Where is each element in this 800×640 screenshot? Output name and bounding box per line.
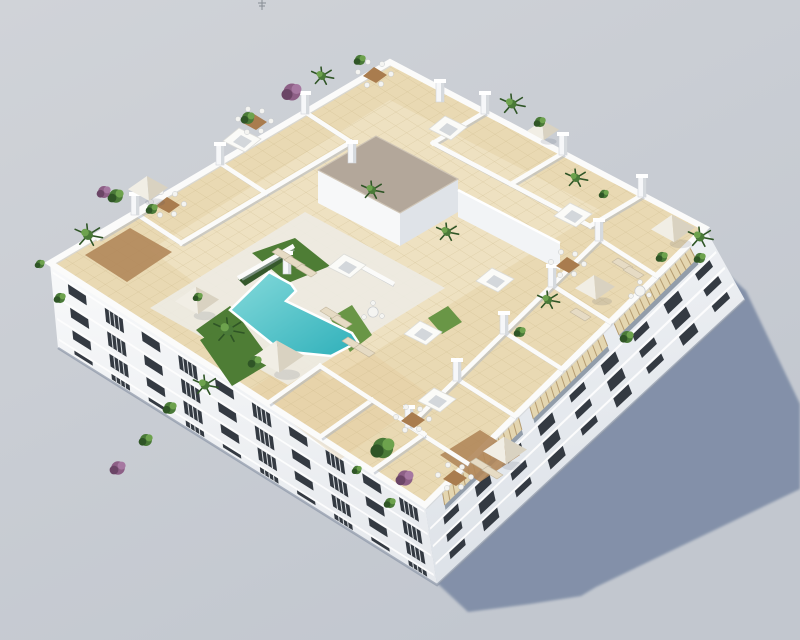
pillar-shade bbox=[553, 267, 556, 287]
plant bbox=[163, 406, 171, 414]
palm-crown bbox=[367, 185, 373, 191]
chair bbox=[379, 61, 384, 66]
plant bbox=[382, 438, 394, 450]
plant bbox=[384, 501, 391, 508]
plant bbox=[255, 356, 262, 363]
plant bbox=[694, 256, 701, 263]
balcony-railing bbox=[339, 516, 340, 521]
balcony-railing bbox=[269, 473, 270, 478]
palm-crown bbox=[571, 173, 577, 179]
plant bbox=[354, 58, 361, 65]
balcony-railing bbox=[195, 426, 196, 431]
chair bbox=[378, 81, 383, 86]
pillar-shade bbox=[643, 177, 646, 197]
chair bbox=[388, 71, 393, 76]
plant bbox=[405, 471, 414, 480]
chair bbox=[393, 414, 398, 419]
chair bbox=[445, 462, 450, 467]
plant bbox=[700, 253, 706, 259]
plant bbox=[118, 462, 126, 470]
pillar-cap bbox=[451, 358, 463, 362]
plant bbox=[248, 112, 255, 119]
chair bbox=[245, 106, 250, 111]
pillar-cap bbox=[214, 142, 226, 146]
plant bbox=[662, 252, 668, 258]
plant bbox=[360, 55, 366, 61]
palm-crown bbox=[317, 71, 323, 77]
plant bbox=[60, 293, 66, 299]
chair bbox=[629, 294, 634, 299]
plant bbox=[97, 190, 105, 198]
plant bbox=[152, 204, 158, 210]
chair bbox=[647, 293, 652, 298]
plant bbox=[352, 469, 358, 475]
architectural-render bbox=[0, 0, 800, 640]
pillar-shade bbox=[505, 314, 508, 334]
round-table bbox=[368, 307, 378, 317]
chair bbox=[558, 249, 563, 254]
chair bbox=[548, 259, 553, 264]
plant bbox=[620, 335, 628, 343]
chair bbox=[171, 211, 176, 216]
chair bbox=[258, 128, 263, 133]
balcony-railing bbox=[343, 519, 344, 524]
chair bbox=[581, 261, 586, 266]
render-canvas bbox=[0, 0, 800, 640]
plant bbox=[604, 190, 609, 195]
palm-crown bbox=[81, 229, 89, 237]
balcony-railing bbox=[273, 476, 274, 481]
balcony-railing bbox=[199, 429, 200, 434]
plant bbox=[396, 475, 406, 485]
plant bbox=[146, 207, 153, 214]
pillar-cap bbox=[498, 311, 510, 315]
chair bbox=[416, 426, 421, 431]
chair bbox=[235, 116, 240, 121]
chair bbox=[458, 484, 463, 489]
plant bbox=[599, 193, 605, 199]
pillar-cap bbox=[479, 91, 491, 95]
pillar-shade bbox=[458, 361, 461, 381]
chair bbox=[638, 280, 643, 285]
balcony-railing bbox=[264, 470, 265, 475]
pillar-shade bbox=[353, 143, 356, 163]
chair bbox=[157, 212, 162, 217]
palm-crown bbox=[442, 227, 448, 233]
round-table bbox=[635, 286, 645, 296]
chair bbox=[468, 474, 473, 479]
plant bbox=[35, 263, 41, 269]
palm-crown bbox=[543, 295, 549, 301]
chair bbox=[572, 251, 577, 256]
chair bbox=[362, 315, 367, 320]
chair bbox=[371, 301, 376, 306]
plant bbox=[116, 190, 124, 198]
chair bbox=[181, 201, 186, 206]
chair bbox=[380, 314, 385, 319]
chair bbox=[244, 129, 249, 134]
plant bbox=[514, 330, 521, 337]
plant bbox=[139, 438, 147, 446]
pillar-shade bbox=[136, 195, 139, 215]
plant bbox=[241, 116, 249, 124]
plant bbox=[282, 89, 293, 100]
chair bbox=[435, 472, 440, 477]
chair bbox=[268, 118, 273, 123]
chair bbox=[259, 108, 264, 113]
balcony-railing bbox=[190, 423, 191, 428]
pillar-shade bbox=[564, 135, 567, 155]
plant bbox=[357, 466, 362, 471]
pillar-shade bbox=[306, 94, 309, 114]
chair bbox=[172, 191, 177, 196]
chair bbox=[426, 416, 431, 421]
chair bbox=[365, 59, 370, 64]
plant bbox=[370, 444, 383, 457]
plant bbox=[540, 117, 546, 123]
pillar-shade bbox=[600, 221, 603, 241]
balcony-railing bbox=[120, 380, 121, 385]
plant bbox=[54, 296, 61, 303]
chair bbox=[571, 271, 576, 276]
pillar-cap bbox=[346, 140, 358, 144]
plant bbox=[40, 260, 45, 265]
pillar-shade bbox=[441, 82, 444, 102]
plant bbox=[534, 120, 541, 127]
pillar-cap bbox=[593, 218, 605, 222]
plant bbox=[193, 296, 199, 302]
plant bbox=[146, 434, 153, 441]
chair bbox=[417, 406, 422, 411]
balcony-railing bbox=[116, 377, 117, 382]
plant bbox=[110, 466, 119, 475]
chair bbox=[364, 82, 369, 87]
chair bbox=[355, 69, 360, 74]
pillar-cap bbox=[299, 91, 311, 95]
chair bbox=[459, 464, 464, 469]
plant bbox=[656, 255, 663, 262]
plant bbox=[198, 293, 203, 298]
pillar-cap bbox=[636, 174, 648, 178]
chair bbox=[557, 272, 562, 277]
plant bbox=[170, 402, 177, 409]
pillar-shade bbox=[221, 145, 224, 165]
chair bbox=[402, 427, 407, 432]
pillar-cap bbox=[434, 79, 446, 83]
plant bbox=[104, 186, 111, 193]
chair bbox=[403, 404, 408, 409]
palm-crown bbox=[221, 323, 229, 331]
chair bbox=[444, 485, 449, 490]
balcony-railing bbox=[125, 382, 126, 387]
plant bbox=[627, 331, 634, 338]
palm-crown bbox=[694, 231, 701, 238]
plant bbox=[390, 498, 396, 504]
palm-crown bbox=[506, 98, 513, 105]
plant bbox=[248, 360, 256, 368]
pillar-cap bbox=[557, 132, 569, 136]
pillar-shade bbox=[486, 94, 489, 114]
palm-crown bbox=[199, 379, 206, 386]
plant bbox=[292, 84, 302, 94]
plant bbox=[520, 327, 526, 333]
